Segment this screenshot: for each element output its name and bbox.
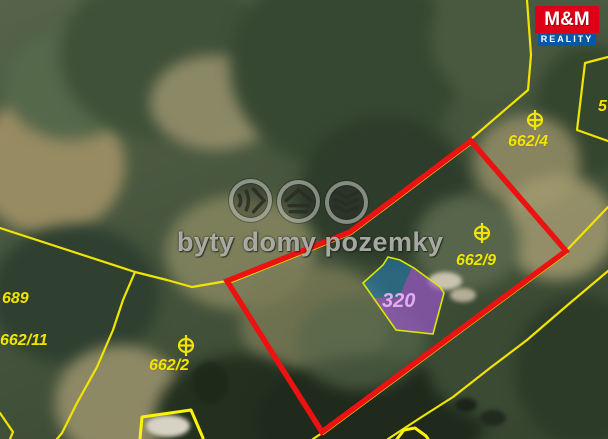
map-viewport[interactable]: 689 662/11 662/2 662/4 662/9 5 320 byty … (0, 0, 608, 439)
boundary-marker-icon (475, 223, 490, 243)
boundary-line-right-upper (566, 207, 608, 251)
boundary-markers (179, 110, 543, 356)
parcel-label-689: 689 (2, 291, 29, 307)
building-label-320: 320 (382, 291, 415, 311)
parcel-label-662-4: 662/4 (508, 134, 548, 150)
boundary-line-left-down (57, 272, 135, 439)
parcel-label-5-partial: 5 (598, 99, 607, 115)
bright-parcel-lines (140, 410, 428, 439)
parcel-label-662-11: 662/11 (0, 333, 48, 349)
boundary-marker-icon (179, 335, 194, 356)
parcel-label-662-9: 662/9 (456, 253, 496, 269)
boundary-line-top (471, 0, 531, 139)
bright-parcel-bottom-center (140, 410, 203, 439)
agency-logo-mm: M&M (535, 6, 599, 33)
cadastral-boundary-lines (0, 0, 608, 439)
parcel-label-662-2: 662/2 (149, 358, 189, 374)
boundary-marker-icon (528, 110, 543, 130)
boundary-line-left (0, 228, 135, 272)
boundary-line-bottom-left-corner (0, 413, 13, 439)
boundary-line-to-red-corner (135, 272, 227, 287)
agency-logo: M&M REALITY (535, 6, 599, 46)
cadastral-overlay (0, 0, 608, 439)
agency-logo-reality: REALITY (538, 33, 596, 46)
